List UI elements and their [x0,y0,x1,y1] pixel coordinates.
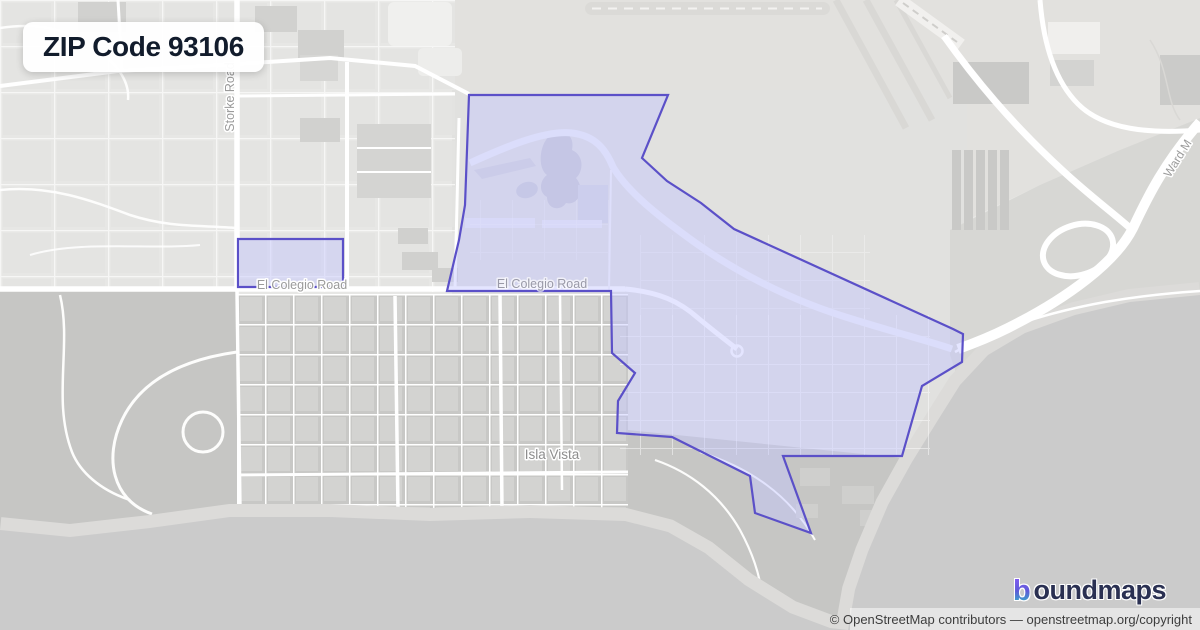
map-canvas[interactable]: Storke Road El Colegio Road El Colegio R… [0,0,1200,630]
boundmaps-logo[interactable]: b oundmaps [1013,574,1166,604]
label-el-colegio-west: El Colegio Road [257,278,347,292]
logo-b-letter: b [1013,575,1031,604]
zip-title-text: ZIP Code 93106 [43,31,244,63]
label-isla-vista: Isla Vista [525,447,580,462]
label-el-colegio-campus: El Colegio Road [497,277,587,291]
boundmaps-logo-icon: b [1013,574,1034,604]
attribution-link[interactable]: © OpenStreetMap contributors — openstree… [830,612,1192,627]
attribution-bar: © OpenStreetMap contributors — openstree… [850,608,1200,630]
map-viewport: Storke Road El Colegio Road El Colegio R… [0,0,1200,630]
isla-vista-grid [237,291,628,510]
zip-title-badge: ZIP Code 93106 [23,22,264,72]
boundmaps-wordmark: oundmaps [1033,577,1166,604]
label-storke-road: Storke Road [223,62,237,132]
